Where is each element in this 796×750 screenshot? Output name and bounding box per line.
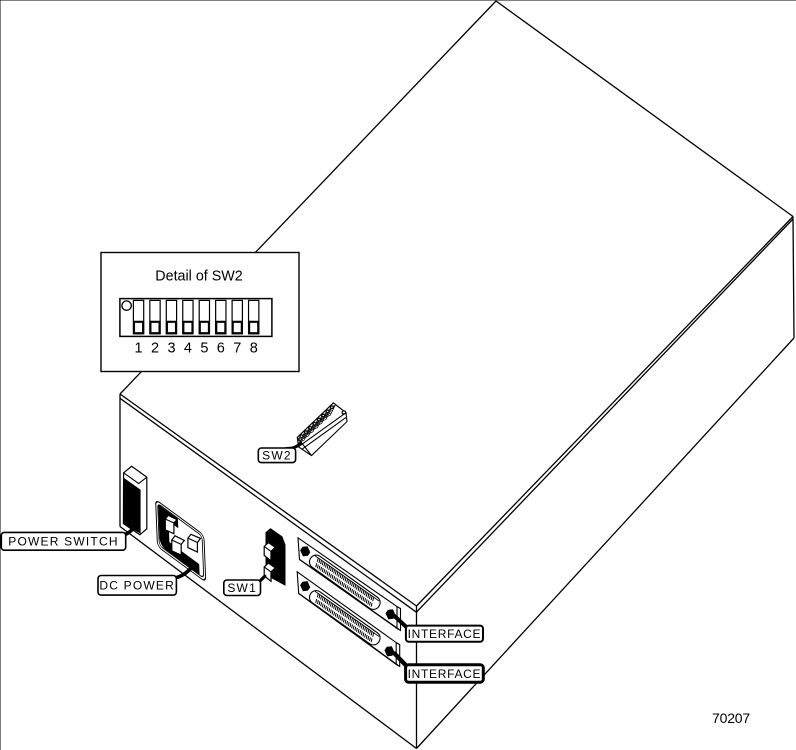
svg-text:DC POWER: DC POWER	[99, 579, 175, 593]
svg-text:5: 5	[200, 341, 208, 357]
svg-text:1: 1	[135, 341, 143, 357]
svg-text:POWER SWITCH: POWER SWITCH	[8, 535, 118, 549]
svg-text:4: 4	[184, 341, 192, 357]
svg-text:INTERFACE: INTERFACE	[408, 667, 482, 681]
svg-text:Detail of SW2: Detail of SW2	[155, 269, 242, 285]
svg-text:7: 7	[233, 341, 241, 357]
svg-text:3: 3	[167, 341, 175, 357]
svg-text:8: 8	[250, 341, 258, 357]
svg-text:70207: 70207	[712, 710, 750, 726]
svg-text:SW2: SW2	[262, 449, 292, 463]
svg-text:2: 2	[151, 341, 159, 357]
svg-text:6: 6	[217, 341, 225, 357]
svg-text:INTERFACE: INTERFACE	[408, 627, 482, 641]
svg-text:SW1: SW1	[227, 581, 257, 595]
